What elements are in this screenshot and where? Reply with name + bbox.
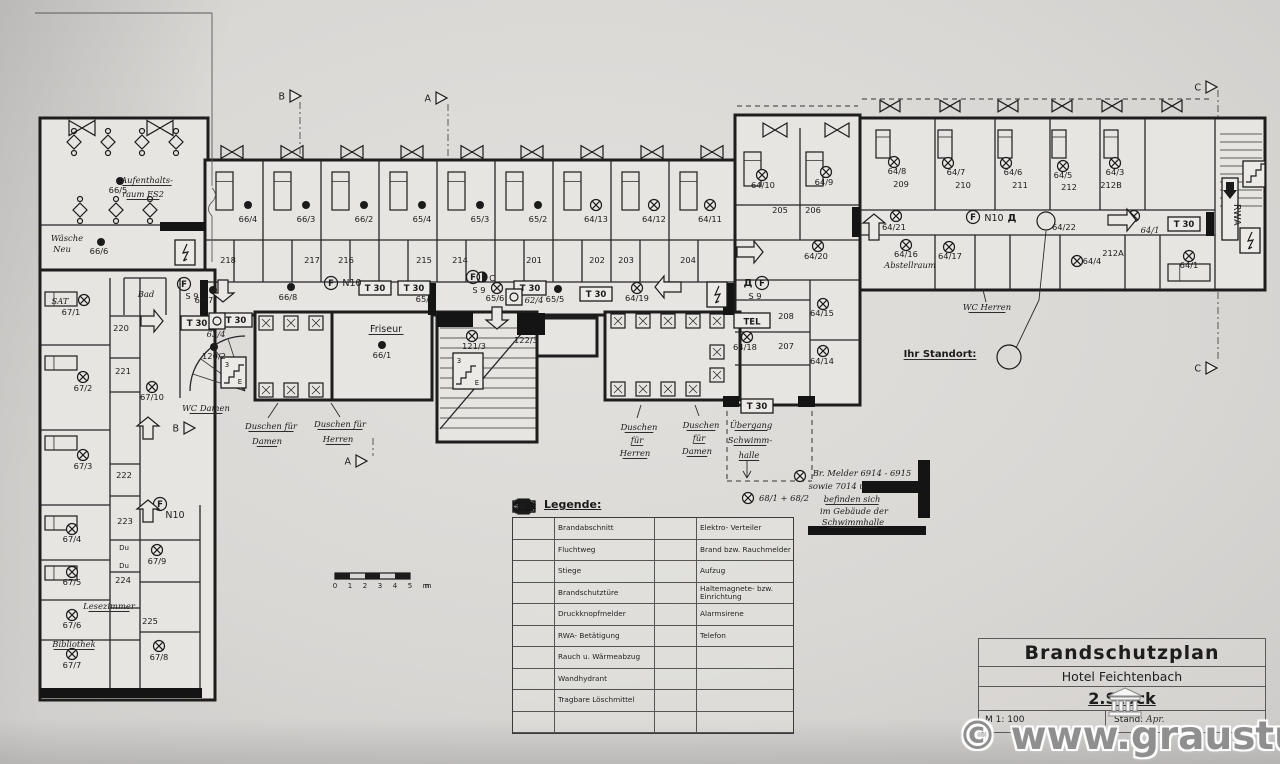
section-marker-icon [356, 455, 367, 467]
annotation: S 9 [472, 285, 485, 295]
window-icon [581, 146, 603, 159]
annotation: Herren [322, 434, 354, 444]
window-icon [221, 146, 243, 159]
legend-label: Stiege [555, 561, 655, 583]
annotation: 62/4 [525, 295, 544, 305]
annotation: WC Herren [963, 302, 1011, 312]
room-label: 67/3 [74, 461, 93, 471]
window-icon [521, 146, 543, 159]
annotation: Duschen für [313, 419, 367, 429]
leader-line [695, 405, 699, 416]
annotation: S 9 [748, 291, 761, 301]
room-label: 218 [220, 255, 236, 265]
legend-label: Druckknopfmelder [555, 604, 655, 626]
section-marker-letter: C [1194, 83, 1201, 94]
annotation: sowie 7014 u. [809, 481, 868, 491]
room-label: 66/8 [279, 292, 298, 302]
legend-label: Aufzug [697, 561, 793, 583]
room-label: 214 [452, 255, 468, 265]
leader-line [983, 290, 986, 302]
annotation: WC Damen [182, 403, 230, 413]
room-label: 67/1 [62, 307, 81, 317]
section-marker-icon [1206, 362, 1217, 374]
section-marker-letter: B [172, 424, 179, 435]
section-marker-letter: B [278, 92, 285, 103]
room-label: 64/12 [642, 214, 666, 224]
window-icon [641, 146, 663, 159]
legend-label: Telefon [697, 626, 793, 648]
legend-label: Haltemagnete- bzw. Einrichtung [697, 583, 793, 605]
window-icon [1102, 100, 1122, 112]
extinguisher-f: F [970, 213, 976, 223]
room-label: 64/9 [815, 177, 834, 187]
building-block [40, 270, 215, 700]
annotation: Herren [619, 448, 651, 458]
section-marker-icon [290, 90, 301, 102]
legend-label: Brandschutztüre [555, 583, 655, 605]
room-label: 67/7 [63, 660, 82, 670]
room-label: 215 [416, 255, 432, 265]
fire-detector-icon [378, 341, 386, 349]
annotation: halle [739, 450, 760, 460]
annotation: Neu [52, 244, 71, 254]
leader-line [743, 471, 747, 478]
legend-label: Wandhydrant [555, 669, 655, 691]
fire-door-t30-label: T 30 [747, 402, 768, 412]
window-icon [940, 100, 960, 112]
room-label: 64/11 [698, 214, 722, 224]
annotation: Duschen [620, 422, 658, 432]
room-label: 217 [304, 255, 320, 265]
fire-door-t30-label: T 30 [187, 319, 208, 329]
annotation: Lesezimmer [82, 601, 136, 611]
room-label: 64/22 [1052, 222, 1076, 232]
annotation: SAT [52, 296, 70, 306]
room-label: 67/8 [150, 652, 169, 662]
legend-label: Alarmsirene [697, 604, 793, 626]
fire-door-t30-label: T 30 [404, 284, 425, 294]
section-marker-icon [1206, 81, 1217, 93]
annotation: Schwimmhalle [822, 517, 884, 527]
fire-detector-icon [554, 285, 562, 293]
scale-unit: m [423, 582, 430, 590]
legend-icon-empty [513, 712, 555, 734]
legend-label: Tragbare Löschmittel [555, 690, 655, 712]
scale-label: 0 [333, 582, 337, 590]
annotation: Du [119, 562, 129, 570]
scale-label: 5 [408, 582, 412, 590]
window-icon [461, 146, 483, 159]
window-icon [880, 100, 900, 112]
stair-letter: E [238, 378, 242, 386]
legend-label [697, 669, 793, 691]
room-label: 212A [1102, 248, 1124, 258]
legend-icon-wandhydrant: C [513, 669, 555, 691]
legend-label [555, 712, 655, 734]
annotation: S 9 [185, 291, 198, 301]
room-label: 122/3 [514, 335, 538, 345]
legend-icon-empty [655, 690, 697, 712]
extinguisher-f: F [181, 280, 187, 290]
fire-detector-icon [360, 201, 368, 209]
fire-detector-icon [210, 343, 218, 351]
window-icon [1052, 100, 1072, 112]
legend-icon-stiege [513, 561, 555, 583]
legend-icon-elektro [655, 518, 697, 540]
fire-detector-icon [287, 283, 295, 291]
room-label: 67/9 [148, 556, 167, 566]
room-label: 220 [113, 323, 129, 333]
push-button-alarm-icon [209, 313, 225, 329]
room-label: 64/13 [584, 214, 608, 224]
legend-icon-aufzug [655, 561, 697, 583]
annotation: Damen [251, 436, 282, 446]
plan-subtitle: Hotel Feichtenbach [979, 667, 1265, 687]
leader-line [637, 405, 641, 418]
stair-icon [1243, 161, 1265, 187]
stair-number: 3 [225, 361, 229, 369]
stair-number: 3 [457, 357, 461, 365]
legend-icon-empty [655, 712, 697, 734]
fire-door-t30-label: T 30 [520, 284, 541, 294]
room-label: 206 [805, 205, 821, 215]
room-label: 212 [1061, 182, 1077, 192]
fire-section-bar [852, 207, 860, 237]
section-marker-icon [436, 92, 447, 104]
room-label: 221 [115, 366, 131, 376]
legend-icon-sirene [655, 604, 697, 626]
legend-icon-rwa: RWA [513, 626, 555, 648]
room-label: 64/10 [751, 180, 775, 190]
legend-icon-fluchtweg [513, 540, 555, 562]
annotation: N10 [984, 213, 1003, 224]
annotation: Ihr Standort: [904, 349, 977, 360]
standort-circle-icon [997, 345, 1021, 369]
leader-line [268, 403, 278, 418]
annotation: Д [1008, 213, 1017, 224]
window-icon [1162, 100, 1182, 112]
room-label: 64/3 [1106, 167, 1125, 177]
room-label: 66/1 [373, 350, 392, 360]
legend-label [697, 690, 793, 712]
legend-icon-t30: T 30 [513, 583, 555, 605]
room-label: 64/14 [810, 356, 834, 366]
annotation: Wäsche [51, 233, 83, 243]
scale-bar-segment [365, 573, 380, 579]
room-label: 65/4 [413, 214, 432, 224]
annotation: Du [119, 544, 129, 552]
room-label: 65/6 [486, 293, 505, 303]
annotation: 63/4 [207, 329, 226, 339]
scale-label: 2 [363, 582, 367, 590]
legend-icon-loeschmittel: FS 9 [513, 690, 555, 712]
annotation: für [630, 435, 644, 445]
annotation: Damen [681, 446, 712, 456]
annotation: Aufenthalts- [120, 175, 173, 185]
extinguisher-f: F [328, 279, 334, 289]
rwa-label: RWA [1231, 204, 1242, 226]
room-label: 207 [778, 341, 794, 351]
legend: Legende: BrandabschnittElektro- Verteile… [512, 498, 794, 734]
room-label: 66/4 [239, 214, 258, 224]
fire-door-t30-label: T 30 [226, 316, 247, 326]
room-label: 225 [142, 616, 158, 626]
room-label: 64/4 [1083, 256, 1102, 266]
room-label: 65/2 [529, 214, 548, 224]
fire-section-bar [862, 481, 920, 493]
room-label: 202 [589, 255, 605, 265]
legend-label: Brand bzw. Rauchmelder [697, 540, 793, 562]
room-label: 65/3 [471, 214, 490, 224]
room-label: 64/1 [1180, 260, 1199, 270]
fire-detector-icon [476, 201, 484, 209]
legend-label: RWA- Betätigung [555, 626, 655, 648]
room-label: 64/7 [947, 167, 966, 177]
annotation: für [692, 433, 706, 443]
room-label: 201 [526, 255, 542, 265]
leader-line [1016, 300, 1039, 348]
room-label: 216 [338, 255, 354, 265]
annotation: Bad [137, 289, 155, 299]
room-label: 64/18 [733, 342, 757, 352]
fire-detector-icon [302, 201, 310, 209]
annotation: N10 [342, 278, 361, 289]
annotation: raum FS2 [122, 189, 164, 199]
section-marker-letter: C [1194, 364, 1201, 375]
annotation: Duschen [682, 420, 720, 430]
room-label: 64/20 [804, 251, 828, 261]
legend-heading: Legende: [544, 498, 794, 511]
room-label: 224 [115, 575, 131, 585]
scale-bar-segment [395, 573, 410, 579]
room-label: 210 [955, 180, 971, 190]
annotation: Abstellraum [883, 260, 936, 270]
room-label: 67/6 [63, 620, 82, 630]
room-label: 204 [680, 255, 696, 265]
fire-section-bar [437, 312, 473, 327]
annotation: Übergang [730, 419, 773, 430]
legend-icon-empty [655, 669, 697, 691]
legend-label: Brandabschnitt [555, 518, 655, 540]
fire-detector-icon [534, 201, 542, 209]
fire-section-bar [798, 396, 815, 407]
fire-detector-icon [244, 201, 252, 209]
room-label: 64/8 [888, 166, 907, 176]
annotation: Br. Melder 6914 - 6915 [812, 468, 912, 478]
legend-label: Elektro- Verteiler [697, 518, 793, 540]
leader-line [747, 471, 751, 478]
room-label: 209 [893, 179, 909, 189]
legend-icon-druckknopf [513, 604, 555, 626]
scale-label: 4 [393, 582, 398, 590]
watermark: © www.graustufe.at [958, 714, 1280, 759]
room-label: 64/5 [1054, 170, 1073, 180]
room-label: 120/2 [202, 351, 226, 361]
room-label: 67/10 [140, 392, 164, 402]
annotation: Д [744, 278, 753, 289]
legend-icon-haltemagnet [655, 583, 697, 605]
room-label: 64/19 [625, 293, 649, 303]
room-label: 203 [618, 255, 634, 265]
room-label: 208 [778, 311, 794, 321]
section-marker-letter: A [345, 457, 352, 468]
room-label: 66/2 [355, 214, 374, 224]
room-label: 64/6 [1004, 167, 1023, 177]
annotation: C [489, 273, 495, 283]
section-marker-letter: A [425, 94, 432, 105]
fire-door-t30-label: T 30 [365, 284, 386, 294]
extinguisher-f: F [759, 279, 765, 289]
room-label: 64/17 [938, 251, 962, 261]
telephone-label: TEL [743, 318, 761, 328]
stair-letter: E [475, 379, 479, 387]
legend-icon-brandabschnitt [513, 518, 555, 540]
annotation: Duschen für [244, 421, 298, 431]
fire-section-bar [517, 313, 545, 335]
room-label: 64/16 [894, 249, 918, 259]
fire-section-bar [40, 688, 202, 698]
fire-section-bar [723, 396, 739, 407]
room-label: 205 [772, 205, 788, 215]
fire-door-t30-label: T 30 [586, 290, 607, 300]
legend-label [697, 647, 793, 669]
legend-icon-empty [655, 647, 697, 669]
room-label: 121/3 [462, 341, 486, 351]
room-label: 65/5 [546, 294, 565, 304]
room-label: 66/6 [90, 246, 109, 256]
window-icon [341, 146, 363, 159]
room-label: 222 [116, 470, 132, 480]
fire-section-bar [1206, 212, 1214, 236]
annotation: Schwimm- [728, 435, 773, 445]
room-label: 212B [1100, 180, 1122, 190]
room-label: 67/5 [63, 577, 82, 587]
plan-title: Brandschutzplan [979, 639, 1265, 667]
scale-label: 1 [348, 582, 352, 590]
room-label: 223 [117, 516, 133, 526]
legend-label: Rauch u. Wärmeabzug [555, 647, 655, 669]
window-icon [701, 146, 723, 159]
fire-section-bar [160, 222, 206, 231]
legend-icon-melder [655, 540, 697, 562]
annotation: Bibliothek [51, 639, 95, 649]
extinguisher-f: F [470, 273, 476, 283]
fire-door-t30-label: T 30 [1174, 220, 1195, 230]
legend-icon-tel: TEL [655, 626, 697, 648]
annotation: N10 [165, 510, 184, 521]
window-icon [998, 100, 1018, 112]
room-label: 66/3 [297, 214, 316, 224]
legend-label [697, 712, 793, 734]
building-block [537, 318, 597, 356]
legend-icon-rauchabzug: RWA [513, 647, 555, 669]
annotation: 64/1 [1141, 225, 1160, 235]
room-label: 211 [1012, 180, 1028, 190]
annotation: Friseur [370, 324, 402, 335]
fire-detector-icon [97, 238, 105, 246]
legend-label: Fluchtweg [555, 540, 655, 562]
scanned-fire-protection-plan: 3E3E66/466/366/265/465/365/264/1364/1264… [0, 0, 1280, 764]
room-label: 67/4 [63, 534, 82, 544]
legend-table: BrandabschnittElektro- VerteilerFluchtwe… [512, 517, 794, 734]
annotation: befinden sich [824, 494, 881, 504]
room-label: 67/2 [74, 383, 93, 393]
scale-bar-segment [335, 573, 350, 579]
fire-detector-icon [418, 201, 426, 209]
push-button-alarm-icon [506, 289, 522, 305]
window-icon [401, 146, 423, 159]
room-label: 64/15 [810, 308, 834, 318]
annotation: im Gebäude der [820, 506, 889, 516]
scale-label: 3 [378, 582, 382, 590]
leader-line [331, 403, 340, 417]
